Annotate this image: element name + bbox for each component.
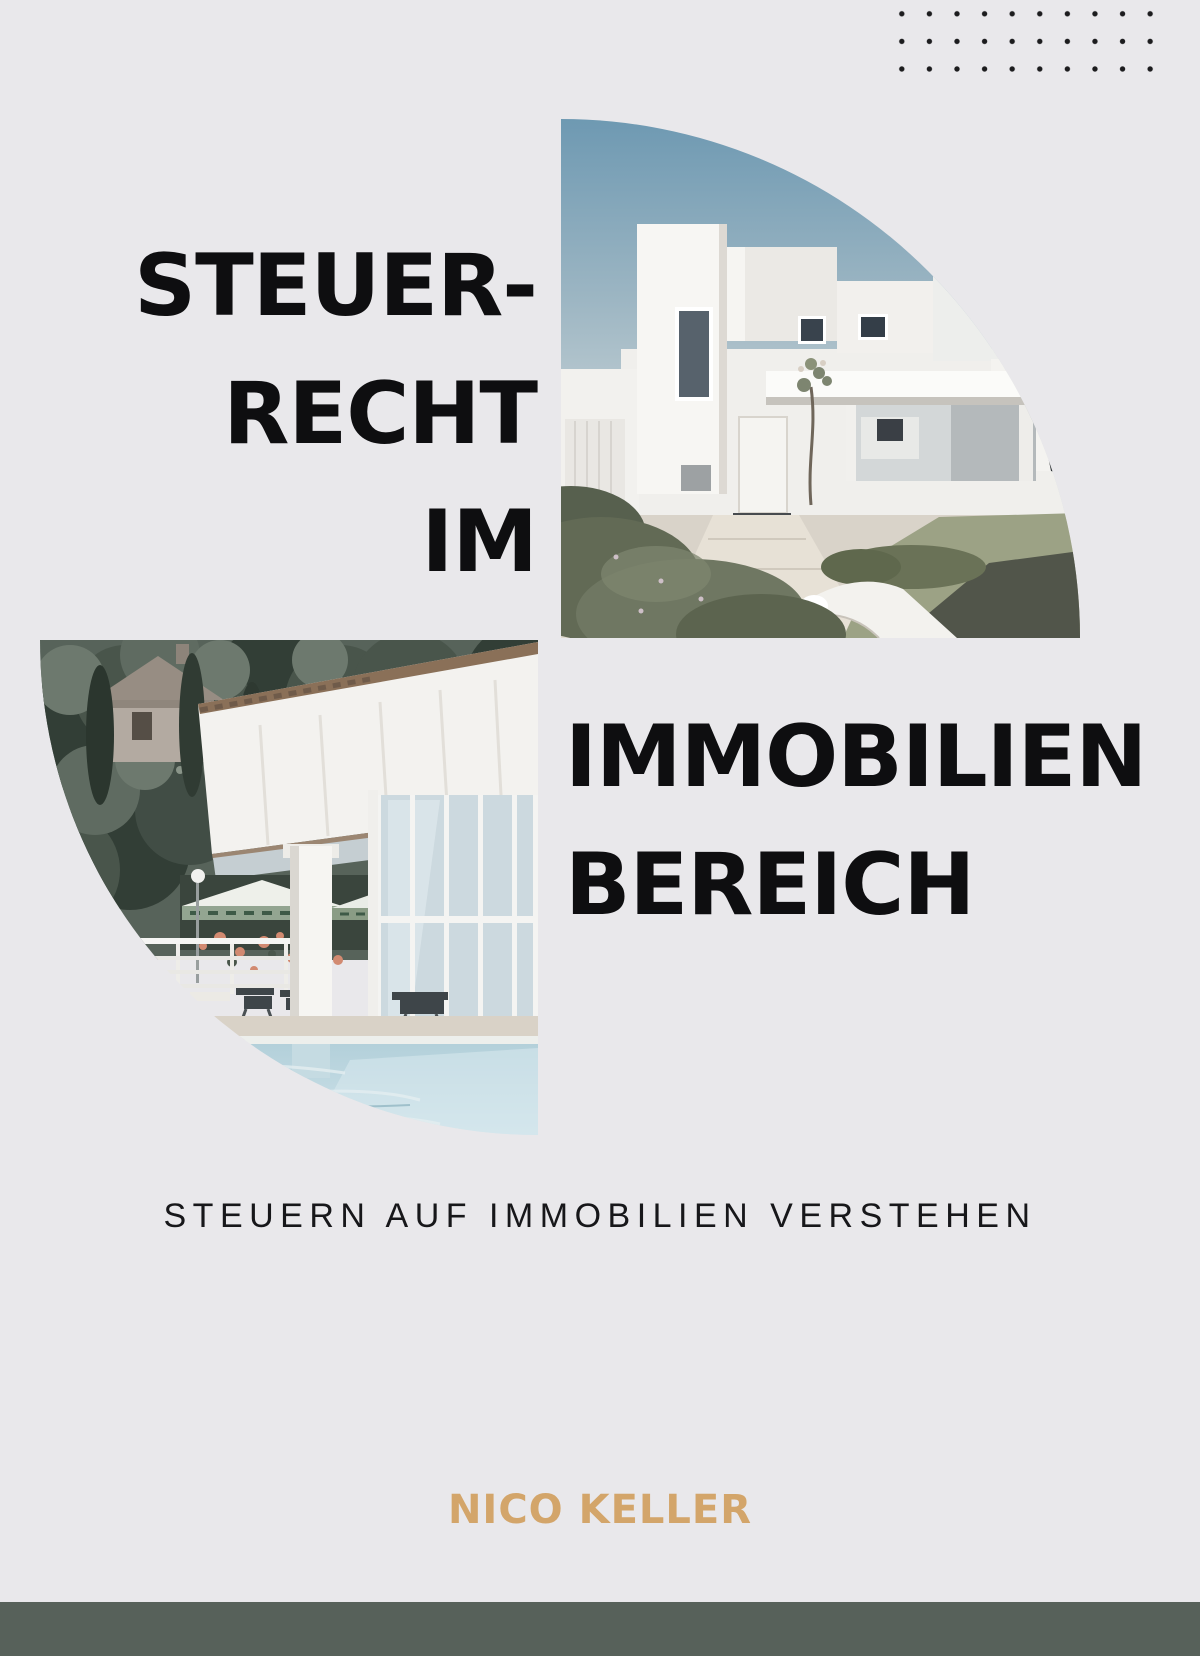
- dot-grid-decoration: [888, 0, 1164, 83]
- cover-page: STEUER- RECHT IM IMMOBILIEN BEREICH STEU…: [0, 0, 1200, 1656]
- subtitle: STEUERN AUF IMMOBILIEN VERSTEHEN: [0, 1197, 1200, 1236]
- title-line-steuer: STEUER-: [134, 222, 537, 350]
- house-photo: [561, 119, 1080, 638]
- pool-photo: [40, 640, 538, 1135]
- author-name: NICO KELLER: [0, 1487, 1200, 1533]
- title-right-block: IMMOBILIEN BEREICH: [565, 693, 1146, 949]
- house-photo-illustration: [561, 119, 1080, 638]
- title-line-immobilien: IMMOBILIEN: [565, 693, 1146, 821]
- footer-bar: [0, 1602, 1200, 1656]
- pool-photo-illustration: [40, 640, 538, 1135]
- title-line-bereich: BEREICH: [565, 821, 1146, 949]
- title-left-block: STEUER- RECHT IM: [134, 222, 537, 606]
- title-line-recht: RECHT: [134, 350, 537, 478]
- title-line-im: IM: [134, 478, 537, 606]
